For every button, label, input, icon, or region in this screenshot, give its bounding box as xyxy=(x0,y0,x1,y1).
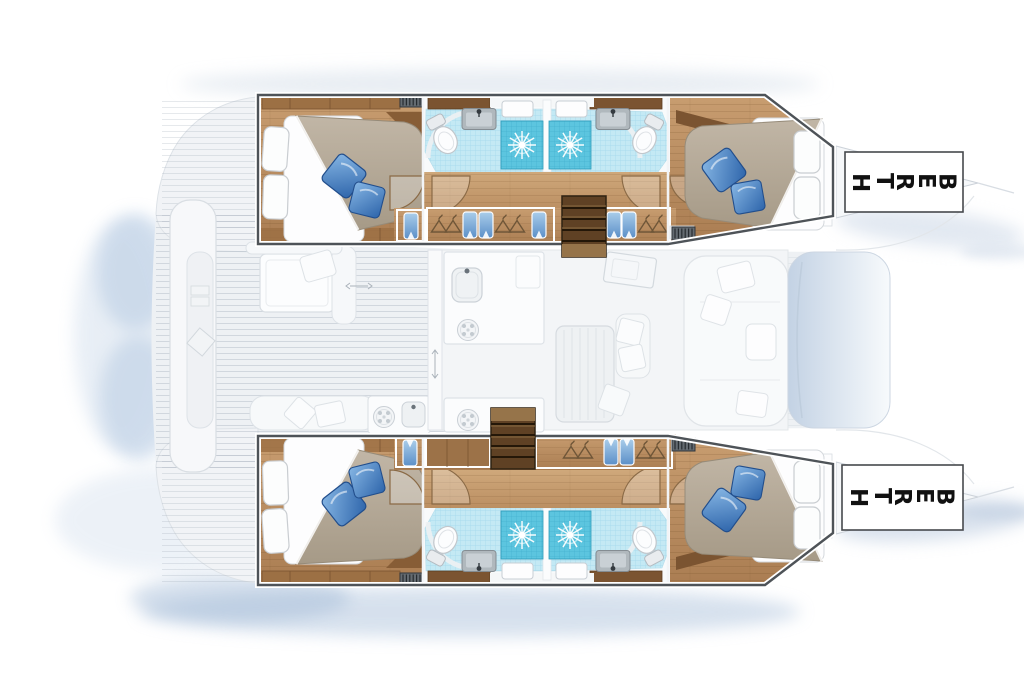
port-bathrooms xyxy=(424,95,670,175)
berth-label-box-starboard: HTREB xyxy=(842,465,963,530)
shower-icon xyxy=(549,121,591,169)
grill-icon xyxy=(374,407,395,428)
locker-panel-icon xyxy=(404,213,418,239)
salon-aft-wall xyxy=(428,250,442,430)
catamaran-floor-plan-page: HTREB HTREB xyxy=(0,0,1024,683)
outdoor-galley-module xyxy=(368,396,430,434)
port-wardrobes xyxy=(394,208,695,244)
port-stairs xyxy=(562,196,606,257)
catamaran-floor-plan: HTREB HTREB xyxy=(0,0,1024,683)
shower-icon xyxy=(501,511,543,559)
port-hull xyxy=(258,94,833,257)
sink-icon xyxy=(462,109,496,130)
salon xyxy=(428,250,890,432)
sink-icon xyxy=(596,551,630,572)
sofa xyxy=(684,256,788,426)
berth-label-box-port: HTREB xyxy=(845,152,963,212)
blue-pillow-icon xyxy=(348,461,386,499)
cockpit-bench xyxy=(332,246,356,324)
blue-pillow-icon xyxy=(348,181,386,219)
berth-label-starboard: HTREB xyxy=(845,488,957,512)
berth-label-port: HTREB xyxy=(847,173,959,197)
blue-pillow-icon xyxy=(730,179,765,214)
forward-lounge-pad xyxy=(788,252,890,428)
starboard-forward-bed xyxy=(685,450,824,562)
starboard-hull xyxy=(258,408,833,586)
sink-icon xyxy=(462,551,496,572)
galley xyxy=(444,252,544,432)
starboard-corridor xyxy=(390,466,700,508)
nav-station xyxy=(603,252,657,289)
locker-panel-icon xyxy=(403,440,417,466)
starboard-stairs xyxy=(491,408,535,469)
aft-platform xyxy=(170,200,216,472)
starboard-bathrooms xyxy=(424,505,670,585)
stove-icon xyxy=(458,320,479,341)
shower-icon xyxy=(501,121,543,169)
starboard-wardrobes xyxy=(394,434,695,470)
blue-pillow-icon xyxy=(730,465,765,500)
port-forward-bed xyxy=(685,118,824,230)
sink-icon xyxy=(596,109,630,130)
shower-icon xyxy=(549,511,591,559)
